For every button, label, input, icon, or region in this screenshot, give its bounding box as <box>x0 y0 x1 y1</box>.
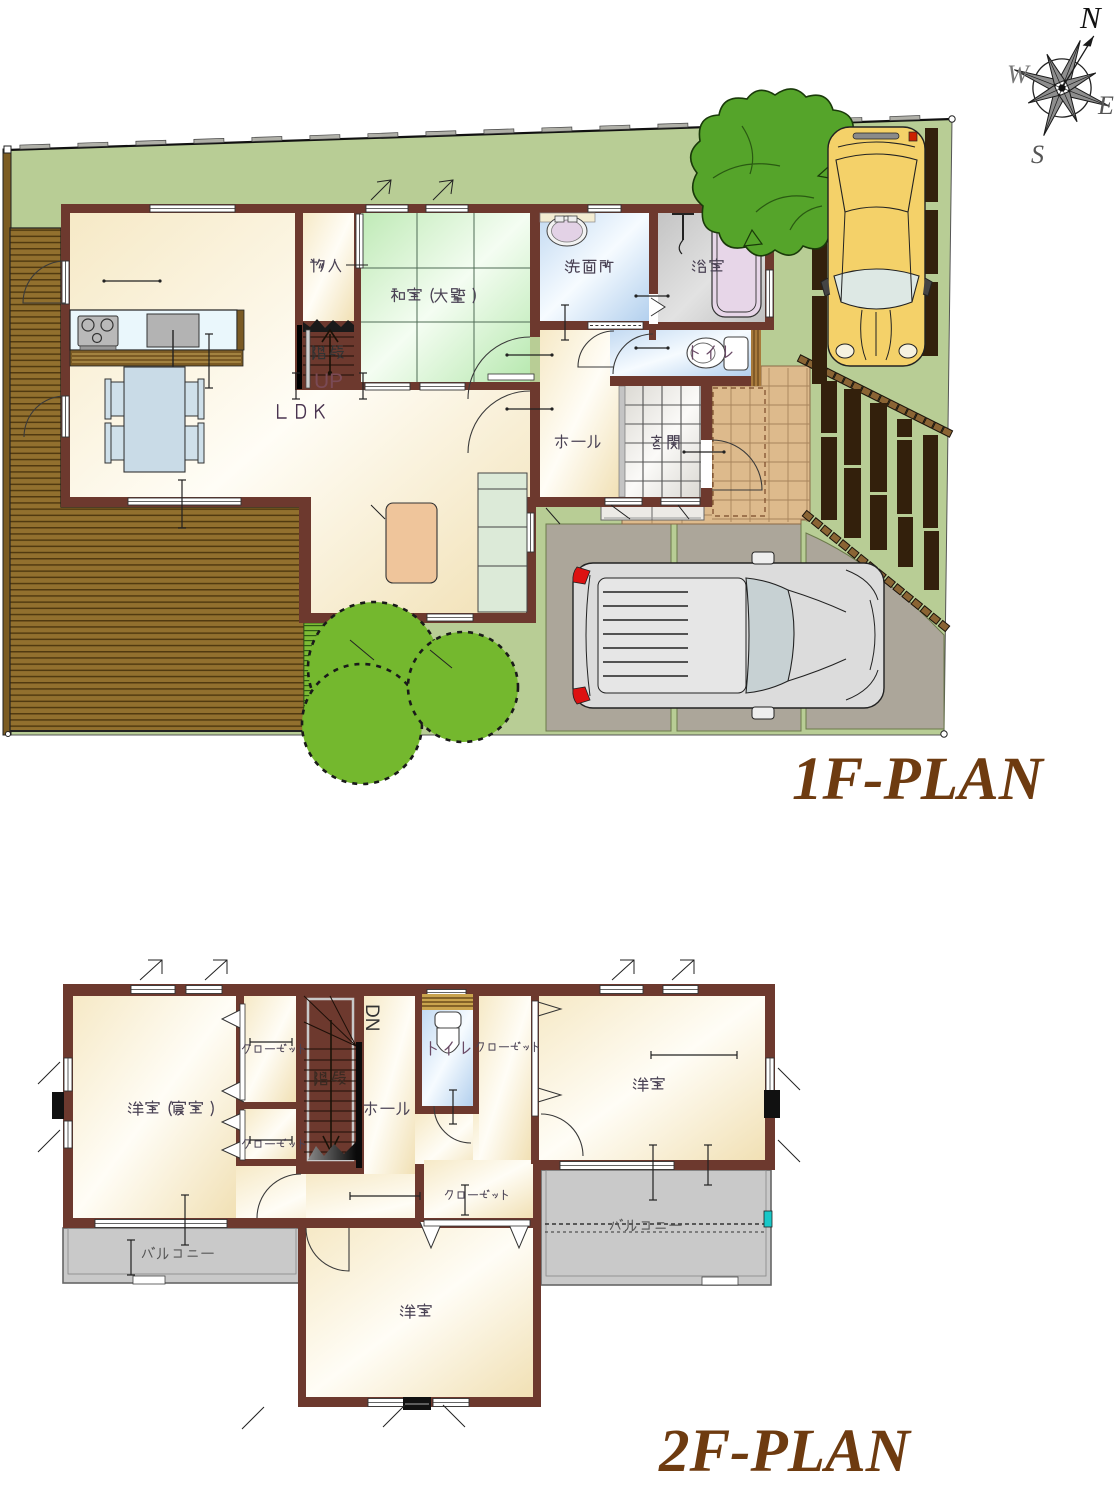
svg-text:S: S <box>1031 140 1044 169</box>
svg-text:N: N <box>1079 0 1103 35</box>
svg-text:DN: DN <box>361 1004 382 1031</box>
svg-text:2F-PLAN: 2F-PLAN <box>658 1418 912 1485</box>
svg-text:1F-PLAN: 1F-PLAN <box>792 746 1045 813</box>
svg-text:UP: UP <box>314 370 343 393</box>
svg-text:W: W <box>1007 60 1031 89</box>
svg-text:E: E <box>1097 91 1114 120</box>
